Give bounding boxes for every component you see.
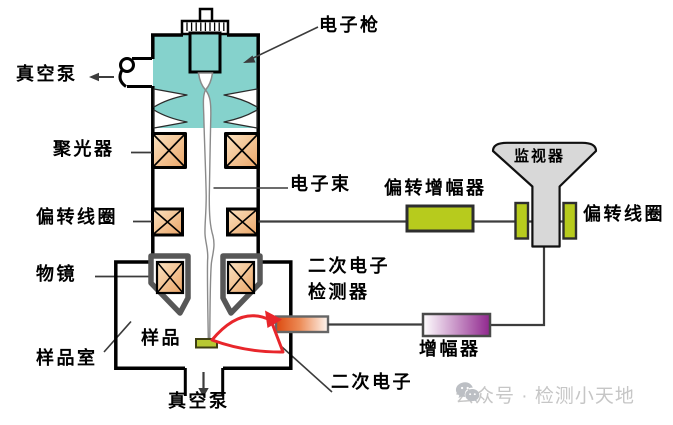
wire-amp-to-monitor <box>490 247 545 326</box>
objective-lens <box>151 256 260 313</box>
sem-schematic-figure: 电子枪 真空泵 聚光器 电子束 偏转线圈 偏转增幅器 监视器 偏转线圈 物镜 二… <box>0 0 673 425</box>
label-crt-deflection-coil: 偏转线圈 <box>583 204 665 225</box>
crt-coil-right <box>564 203 577 239</box>
se-detector-body <box>276 317 328 333</box>
label-objective-lens: 物镜 <box>36 264 77 285</box>
vacuum-pump-port <box>89 59 153 87</box>
gun-cathode-block <box>190 33 220 72</box>
label-deflection-amplifier: 偏转增幅器 <box>384 178 487 199</box>
label-electron-beam: 电子束 <box>290 174 352 195</box>
label-secondary-electron: 二次电子 <box>331 372 413 393</box>
secondary-electron-fan <box>212 311 283 353</box>
label-sample-chamber: 样品室 <box>36 348 98 369</box>
label-condenser: 聚光器 <box>53 139 115 160</box>
vacuum-arrow-head <box>89 73 99 81</box>
watermark: 公众号 · 检测小天地 <box>455 381 635 408</box>
crt-coil-left <box>516 203 529 239</box>
label-electron-gun: 电子枪 <box>319 15 381 36</box>
label-se-detector-line2: 检测器 <box>308 282 370 303</box>
pump-tube-knob <box>121 59 134 72</box>
label-amplifier: 增幅器 <box>419 339 481 360</box>
wechat-icon <box>455 381 483 404</box>
deflection-amplifier-box <box>407 206 473 231</box>
label-sample: 样品 <box>141 328 182 349</box>
label-vacuum-pump-bottom: 真空泵 <box>168 391 230 412</box>
amplifier-box <box>423 314 490 336</box>
label-se-detector-line1: 二次电子 <box>308 256 390 277</box>
label-monitor: 监视器 <box>514 148 565 165</box>
label-vacuum-pump-top: 真空泵 <box>16 64 78 85</box>
label-deflection-coil: 偏转线圈 <box>36 207 118 228</box>
